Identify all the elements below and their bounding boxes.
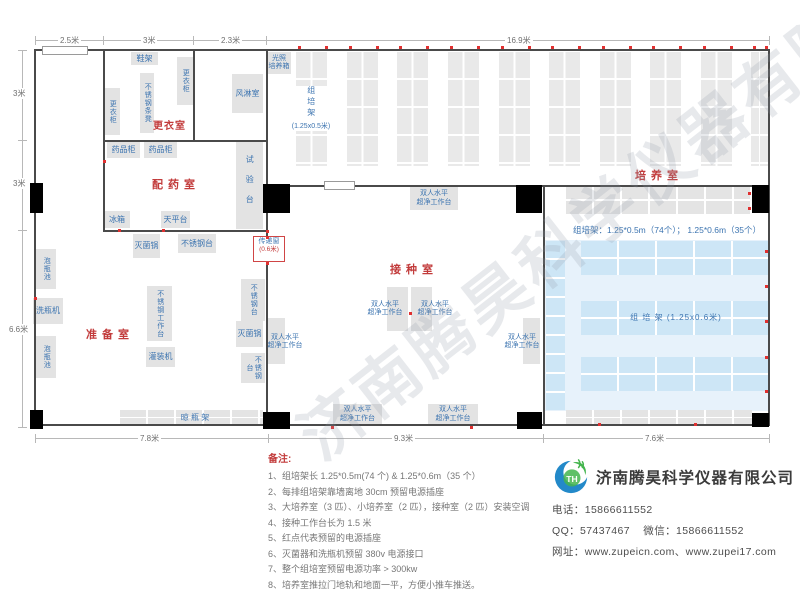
- room-label-changing: 更衣室: [153, 117, 186, 132]
- power-outlet-dot: [162, 229, 165, 232]
- power-outlet-dot: [528, 46, 531, 49]
- medicine-cabinet: 药品柜: [144, 142, 177, 158]
- wall-outer-top: [35, 49, 770, 51]
- clean-bench-label: 双人水平超净工作台: [413, 301, 457, 318]
- power-outlet-dot: [470, 426, 473, 429]
- power-outlet-dot: [679, 46, 682, 49]
- medicine-cabinet: 药品柜: [107, 142, 140, 158]
- door-symbol: [324, 181, 355, 190]
- dim-label: 9.3米: [392, 433, 415, 444]
- culture-rack-column: [448, 52, 479, 166]
- power-outlet-dot: [765, 285, 768, 288]
- power-outlet-dot: [325, 46, 328, 49]
- notes-block: 备注: 1、组培架长 1.25*0.5m(74 个) & 1.25*0.6m（3…: [268, 450, 530, 593]
- wall-outer-bottom: [35, 424, 770, 426]
- power-outlet-dot: [409, 312, 412, 315]
- clean-bench: 双人水平超净工作台: [410, 187, 458, 210]
- soak-pool: 泡瓶池: [36, 249, 56, 289]
- culture-rack-column: [600, 52, 631, 166]
- culture-rack-column: [347, 52, 378, 166]
- website-url-2[interactable]: www.zupei17.com: [686, 546, 777, 558]
- dim-tick: [193, 36, 194, 45]
- clean-bench-label: 双人水平超净工作台: [264, 334, 306, 351]
- power-outlet-dot: [730, 46, 733, 49]
- wechat-label: 微信：: [643, 525, 676, 537]
- note-item: 6、灭菌器和洗瓶机预留 380v 电源接口: [268, 547, 530, 563]
- contact-phone-row: 电话：15866611552: [552, 502, 794, 517]
- notes-list: 1、组培架长 1.25*0.5m(74 个) & 1.25*0.6m（35 个）…: [268, 469, 530, 593]
- wall-inner: [543, 185, 545, 425]
- drying-rack-label: 晾 瓶 架: [160, 413, 230, 423]
- wall-inner: [103, 140, 267, 142]
- culture-rack-band: [581, 241, 768, 275]
- dim-tick: [35, 434, 36, 443]
- pillar: [30, 183, 43, 213]
- test-bench: 试验台: [236, 141, 263, 229]
- stainless-table: 不锈钢台: [241, 353, 265, 383]
- culture-rack-vertical-band: [546, 241, 565, 410]
- power-outlet-dot: [629, 46, 632, 49]
- power-outlet-dot: [765, 46, 768, 49]
- power-outlet-dot: [765, 320, 768, 323]
- dim-label: 16.9米: [505, 35, 533, 46]
- power-outlet-dot: [331, 426, 334, 429]
- power-outlet-dot: [477, 46, 480, 49]
- filling-machine: 灌装机: [146, 347, 175, 367]
- note-item: 4、接种工作台长为 1.5 米: [268, 516, 530, 532]
- power-outlet-dot: [753, 46, 756, 49]
- sterilizer: 灭菌锅: [236, 321, 263, 347]
- soak-pool: 泡瓶池: [36, 336, 56, 378]
- dim-label: 7.8米: [138, 433, 161, 444]
- rack-size: (1.25x0.5米): [284, 123, 338, 131]
- power-outlet-dot: [598, 423, 601, 426]
- note-item: 5、红点代表预留的电源插座: [268, 531, 530, 547]
- transfer-window: 传递窗 (0.6米): [253, 236, 285, 262]
- url-separator: 、: [675, 546, 686, 558]
- company-block: TH 济南腾昊科学仪器有限公司 电话：15866611552 QQ：574374…: [552, 458, 794, 559]
- contact-web-row: 网址：www.zupeicn.com、www.zupei17.com: [552, 544, 794, 559]
- room-label-culture: 培养室: [635, 167, 683, 183]
- pillar: [752, 185, 769, 213]
- dim-label: 3米: [11, 88, 27, 99]
- power-outlet-dot: [765, 356, 768, 359]
- door-symbol: [42, 46, 88, 55]
- pillar: [516, 185, 542, 213]
- balance-table: 天平台: [161, 211, 190, 228]
- room-label-dispensing: 配药室: [152, 176, 200, 192]
- dimension-line-left: [22, 50, 23, 428]
- clean-bench-label: 双人水平超净工作台: [501, 334, 543, 351]
- dim-tick: [268, 434, 269, 443]
- pillar: [30, 410, 43, 429]
- phone-value: 15866611552: [585, 504, 653, 516]
- power-outlet-dot: [748, 192, 751, 195]
- floorplan-page: 济南腾昊科学仪器有限公司 组 培 架 (1.25x0.6米) 组培架：1.25*…: [0, 0, 800, 600]
- bottle-washer: 洗瓶机: [33, 298, 63, 324]
- power-outlet-dot: [602, 46, 605, 49]
- note-item: 2、每排组培架靠墙离地 30cm 预留电源插座: [268, 485, 530, 501]
- rack-name-vertical: 组培架: [306, 86, 316, 119]
- power-outlet-dot: [298, 46, 301, 49]
- dim-tick: [543, 434, 544, 443]
- wall-inner: [103, 230, 267, 232]
- stainless-table: 不锈钢台: [178, 234, 216, 253]
- wall-outer-left: [34, 49, 36, 426]
- fridge: 冰箱: [104, 211, 130, 228]
- dim-label: 3米: [11, 178, 27, 189]
- note-item: 1、组培架长 1.25*0.5m(74 个) & 1.25*0.6m（35 个）: [268, 469, 530, 485]
- power-outlet-dot: [703, 46, 706, 49]
- power-outlet-dot: [450, 46, 453, 49]
- company-name: 济南腾昊科学仪器有限公司: [596, 466, 794, 488]
- dim-tick: [769, 36, 770, 45]
- web-label: 网址：: [552, 546, 585, 558]
- power-outlet-dot: [399, 46, 402, 49]
- bottle-rack-bottom: [566, 410, 752, 425]
- dim-tick: [769, 434, 770, 443]
- power-outlet-dot: [578, 46, 581, 49]
- website-url-1[interactable]: www.zupeicn.com: [585, 546, 675, 558]
- rack-band-label: 组 培 架 (1.25x0.6米): [620, 313, 732, 323]
- power-outlet-dot: [426, 46, 429, 49]
- dim-tick: [18, 427, 27, 428]
- culture-rack-band: [581, 357, 768, 391]
- power-outlet-dot: [266, 230, 269, 233]
- power-outlet-dot: [376, 46, 379, 49]
- clean-bench: 双人水平超净工作台: [333, 404, 382, 425]
- pillar: [752, 413, 769, 427]
- power-outlet-dot: [765, 390, 768, 393]
- notes-title: 备注:: [268, 450, 530, 465]
- power-outlet-dot: [765, 250, 768, 253]
- dim-tick: [18, 140, 27, 141]
- power-outlet-dot: [266, 262, 269, 265]
- dim-tick: [18, 230, 27, 231]
- contact-qq-row: QQ：57437467 微信：15866611552: [552, 523, 794, 538]
- room-label-inoculation: 接种室: [390, 261, 438, 277]
- note-item: 8、培养室推拉门地轨和地面一平，方便小推车推送。: [268, 578, 530, 594]
- pillar: [263, 184, 290, 213]
- locker: 更衣柜: [104, 88, 120, 135]
- rack-spec-text: 组培架：1.25*0.5m（74个）； 1.25*0.6m（35个）: [573, 224, 761, 236]
- rack-column-label: 组培架 (1.25x0.5米): [284, 86, 338, 131]
- shoe-rack: 鞋架: [131, 52, 158, 65]
- power-outlet-dot: [349, 46, 352, 49]
- wall-inner: [193, 49, 195, 141]
- wechat-value: 15866611552: [676, 525, 744, 537]
- dim-tick: [266, 36, 267, 45]
- culture-rack-column: [549, 52, 580, 166]
- dim-label: 3米: [141, 35, 157, 46]
- culture-rack-column: [650, 52, 681, 166]
- locker: 更衣柜: [177, 57, 193, 105]
- pillar: [517, 412, 542, 429]
- light-incubator: 光照 培养箱: [267, 52, 291, 74]
- room-label-prep: 准备室: [86, 326, 134, 342]
- dim-label: 2.3米: [219, 35, 242, 46]
- stainless-bench: 不锈钢条凳: [140, 73, 154, 133]
- dim-tick: [18, 50, 27, 51]
- qq-label: QQ：: [552, 525, 580, 537]
- power-outlet-dot: [34, 297, 37, 300]
- power-outlet-dot: [551, 46, 554, 49]
- culture-rack-column: [701, 52, 732, 166]
- power-outlet-dot: [103, 160, 106, 163]
- wall-outer-right: [768, 49, 770, 426]
- phone-label: 电话：: [552, 504, 585, 516]
- dim-label: 7.6米: [643, 433, 666, 444]
- power-outlet-dot: [266, 236, 269, 239]
- culture-rack-column: [397, 52, 428, 166]
- stainless-table: 不锈钢台: [241, 279, 265, 321]
- power-outlet-dot: [748, 207, 751, 210]
- dim-tick: [35, 36, 36, 45]
- pillar: [263, 412, 290, 429]
- power-outlet-dot: [118, 229, 121, 232]
- dim-label: 2.5米: [58, 35, 81, 46]
- culture-rack-column: [751, 52, 768, 166]
- stainless-workbench: 不锈钢工作台: [147, 286, 172, 341]
- clean-bench: 双人水平超净工作台: [428, 404, 478, 425]
- company-logo-icon: TH: [552, 458, 590, 496]
- culture-rack-column: [499, 52, 530, 166]
- power-outlet-dot: [501, 46, 504, 49]
- air-shower: 风淋室: [232, 74, 263, 113]
- dim-label: 6.6米: [7, 324, 30, 335]
- note-item: 7、整个组培室预留电源功率 > 300kw: [268, 562, 530, 578]
- note-item: 3、大培养室（3 匹）、小培养室（2 匹），接种室（2 匹）安装空调: [268, 500, 530, 516]
- culture-rack-horizontal: [566, 186, 750, 214]
- power-outlet-dot: [652, 46, 655, 49]
- power-outlet-dot: [694, 423, 697, 426]
- logo-monogram: TH: [566, 474, 577, 484]
- qq-value: 57437467: [580, 525, 630, 537]
- clean-bench-label: 双人水平超净工作台: [363, 301, 407, 318]
- sterilizer: 灭菌锅: [133, 234, 160, 258]
- dim-tick: [103, 36, 104, 45]
